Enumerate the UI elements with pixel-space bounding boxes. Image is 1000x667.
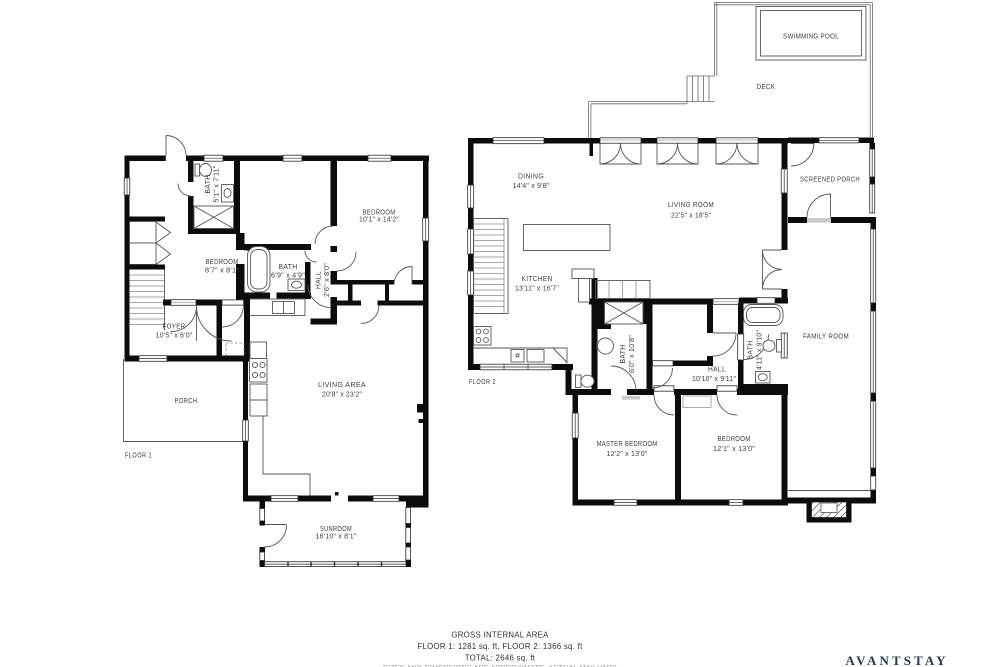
svg-text:BATH: BATH <box>746 341 755 360</box>
svg-text:BATH: BATH <box>618 345 627 364</box>
svg-text:LIVING AREA: LIVING AREA <box>318 380 366 389</box>
svg-text:DECK: DECK <box>757 82 776 91</box>
svg-text:FLOOR 1: FLOOR 1 <box>125 451 152 460</box>
svg-text:8'7" x 8'1": 8'7" x 8'1" <box>205 267 239 275</box>
svg-text:FLOOR 1: 1281 sq. ft, FLOOR 2:: FLOOR 1: 1281 sq. ft, FLOOR 2: 1366 sq. … <box>417 642 583 651</box>
svg-text:10'1" x 14'2": 10'1" x 14'2" <box>359 216 399 224</box>
svg-text:FOYER: FOYER <box>163 322 186 331</box>
svg-text:16'10" x 8'1": 16'10" x 8'1" <box>316 533 357 541</box>
svg-text:KITCHEN: KITCHEN <box>522 274 553 283</box>
svg-text:5'1" x 7'11": 5'1" x 7'11" <box>213 165 221 202</box>
svg-text:10'10" x 9'11": 10'10" x 9'11" <box>692 375 736 383</box>
svg-text:FAMILY ROOM: FAMILY ROOM <box>803 332 849 341</box>
svg-text:BATH: BATH <box>203 175 212 194</box>
svg-text:12'2" x 13'0": 12'2" x 13'0" <box>607 450 648 458</box>
svg-text:TOTAL: 2646 sq. ft: TOTAL: 2646 sq. ft <box>465 654 536 663</box>
svg-text:LIVING ROOM: LIVING ROOM <box>668 200 714 209</box>
svg-text:4'11" x 9'10": 4'11" x 9'10" <box>756 330 764 370</box>
svg-text:20'8" x 23'2": 20'8" x 23'2" <box>322 391 362 399</box>
svg-text:HALL: HALL <box>314 271 323 289</box>
svg-text:PORCH: PORCH <box>175 396 198 405</box>
svg-text:FLOOR 2: FLOOR 2 <box>469 377 496 386</box>
svg-text:2'6" x 8'0": 2'6" x 8'0" <box>323 263 331 297</box>
svg-text:6'9" x 4'9": 6'9" x 4'9" <box>271 272 305 280</box>
svg-text:14'4" x 9'8": 14'4" x 9'8" <box>513 182 550 190</box>
svg-text:DINING: DINING <box>518 172 544 181</box>
svg-text:13'11" x 16'7": 13'11" x 16'7" <box>515 285 559 293</box>
svg-text:12'1" x 13'0": 12'1" x 13'0" <box>713 445 755 453</box>
svg-text:BEDROOM: BEDROOM <box>206 257 239 266</box>
svg-text:AVANTSTAY: AVANTSTAY <box>845 653 948 667</box>
svg-text:GROSS INTERNAL AREA: GROSS INTERNAL AREA <box>451 631 549 640</box>
svg-text:SWIMMING POOL: SWIMMING POOL <box>783 32 839 41</box>
svg-text:6'0" x 10'8": 6'0" x 10'8" <box>628 335 636 373</box>
svg-text:BEDROOM: BEDROOM <box>718 434 751 443</box>
svg-text:HALL: HALL <box>708 365 726 374</box>
svg-text:10'5" x 6'0": 10'5" x 6'0" <box>156 332 193 340</box>
svg-text:BATH: BATH <box>279 262 298 271</box>
svg-text:22'5" x 18'5": 22'5" x 18'5" <box>671 212 711 220</box>
svg-text:MASTER BEDROOM: MASTER BEDROOM <box>597 439 658 448</box>
svg-text:SCREENED PORCH: SCREENED PORCH <box>800 175 860 184</box>
